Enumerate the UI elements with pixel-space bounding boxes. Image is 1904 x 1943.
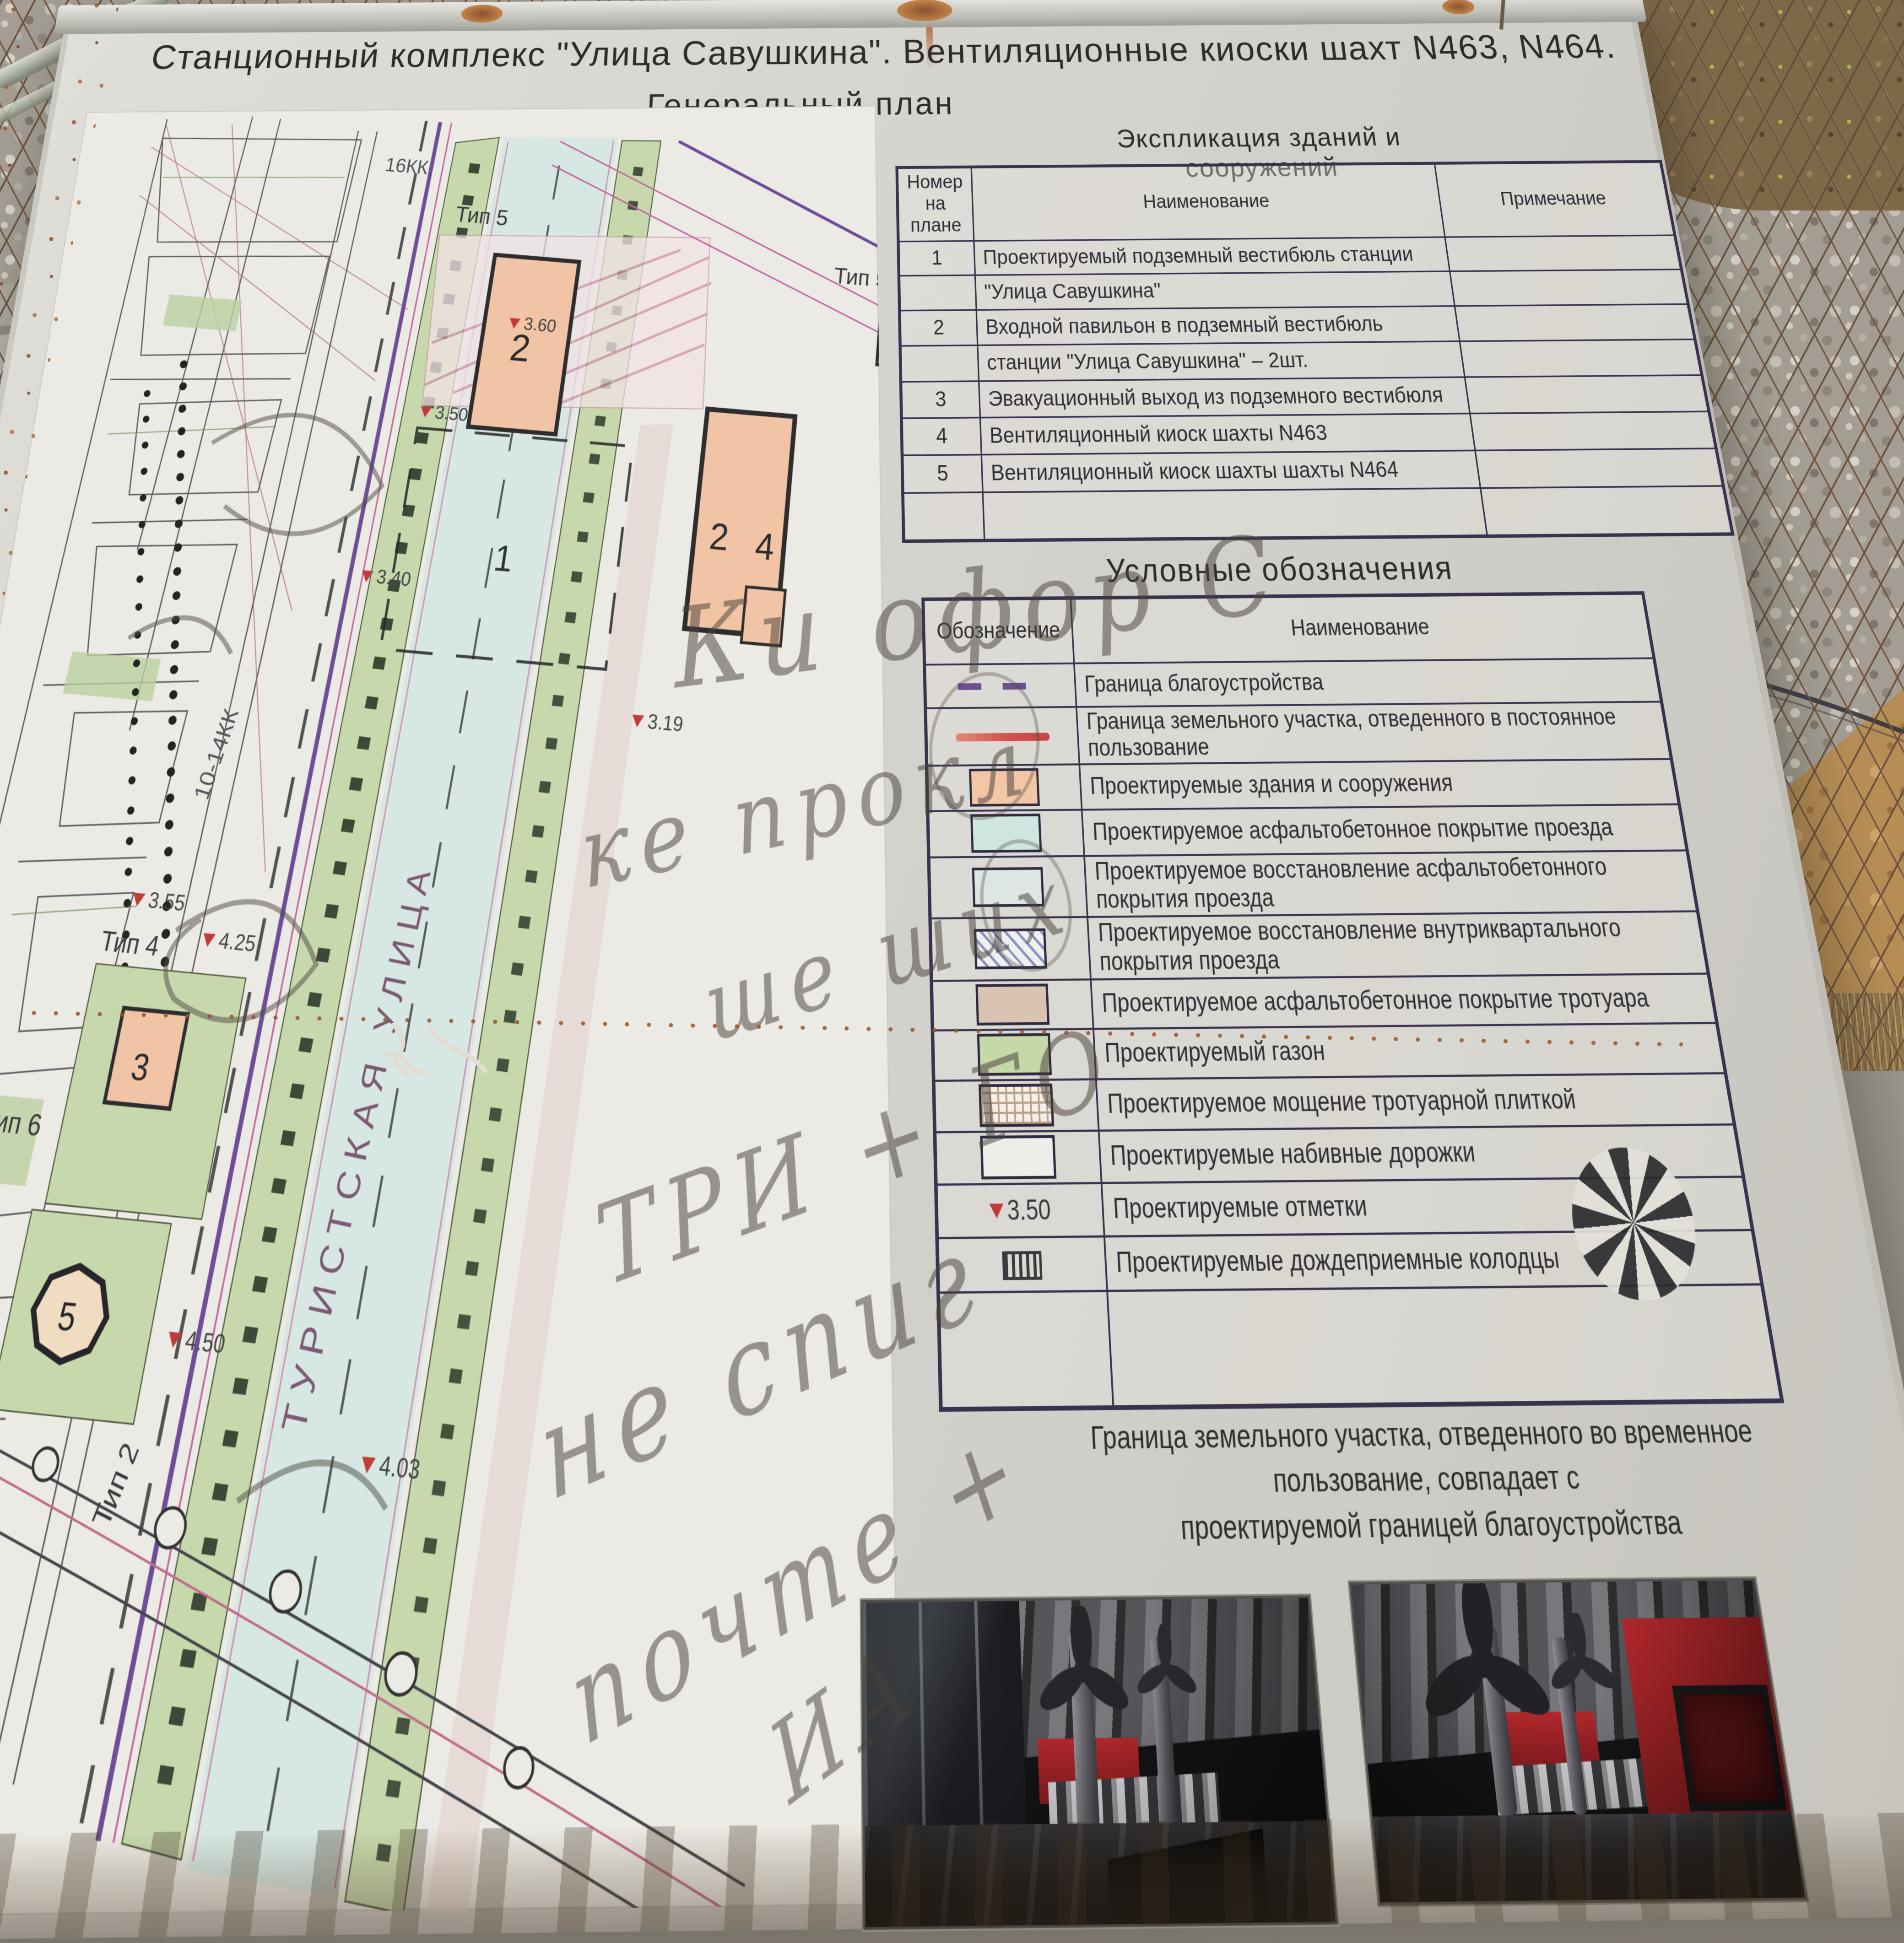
white-rope-icon	[375, 1020, 494, 1075]
elevation-mark-icon	[989, 1204, 1004, 1219]
svg-text:Тип 6: Тип 6	[0, 1102, 45, 1142]
note-line: проектируемой границей благоустройства	[1012, 1498, 1852, 1553]
drain-grate-icon	[1002, 1251, 1042, 1280]
svg-text:Тип 5: Тип 5	[454, 202, 510, 230]
table-header-row: Номер на плане Наименование Примечание	[897, 162, 1675, 241]
svg-text:3.55: 3.55	[146, 888, 187, 916]
col-name: Наименование	[971, 163, 1445, 241]
photo-scene: { "board": { "title": "Станционный компл…	[0, 0, 1904, 1071]
lawn-patch	[63, 651, 161, 702]
col-note: Примечание	[1434, 162, 1675, 237]
legend-row	[938, 1284, 1782, 1409]
svg-text:4.25: 4.25	[216, 928, 258, 957]
table-row	[903, 486, 1732, 541]
svg-text:3.50: 3.50	[433, 402, 470, 426]
svg-text:3.40: 3.40	[375, 566, 412, 591]
table-row: 5Вентиляционный киоск шахты шахты N464	[902, 448, 1723, 492]
information-board: Станционный комплекс "Улица Савушкина". …	[0, 0, 1904, 1942]
explication-table: Номер на плане Наименование Примечание 1…	[895, 160, 1734, 543]
svg-text:3.60: 3.60	[522, 314, 557, 336]
svg-text:4.50: 4.50	[183, 1326, 227, 1360]
rust-stain	[1441, 0, 1476, 14]
table-row: 4Вентиляционный киоск шахты N463	[901, 411, 1716, 455]
svg-text:Тип 4: Тип 4	[98, 925, 162, 962]
note-line: Граница земельного участка, отведенного …	[1010, 1409, 1844, 1507]
bottom-grime	[0, 1812, 1904, 1942]
svg-text:16КК: 16КК	[383, 154, 430, 179]
table-row: станции "Улица Савушкина" – 2шт.	[900, 339, 1702, 382]
rust-stain	[897, 0, 952, 21]
col-number: Номер на плане	[897, 167, 974, 241]
rust-stain	[460, 5, 503, 23]
table-row: 1Проектируемый подземный вестибюль станц…	[898, 235, 1681, 275]
svg-text:4.03: 4.03	[377, 1450, 422, 1485]
table-row: 3Эвакуационный выход из подземного вести…	[901, 375, 1709, 418]
lawn-patch	[162, 294, 242, 331]
table-row: 2Входной павильон в подземный вестибюль	[899, 304, 1695, 345]
board-note: Граница земельного участка, отведенного …	[1010, 1409, 1852, 1553]
svg-text:4: 4	[753, 524, 776, 568]
table-row: "Улица Савушкина"	[899, 269, 1688, 310]
